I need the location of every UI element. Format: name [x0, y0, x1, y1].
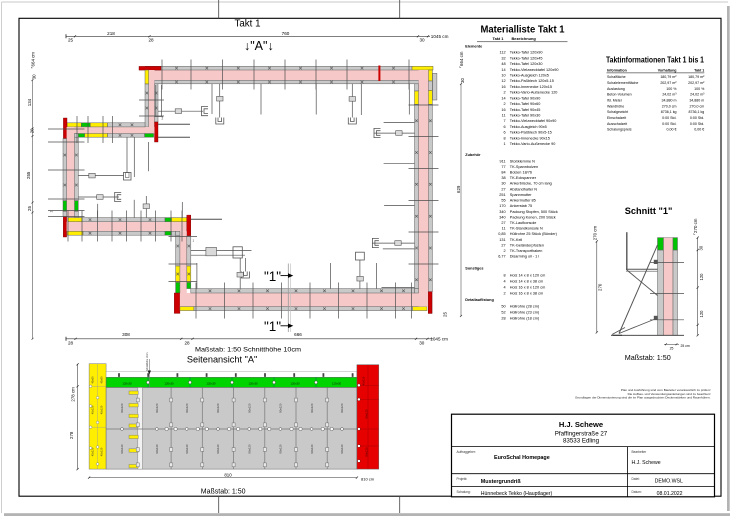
svg-text:"1": "1"	[264, 319, 281, 334]
svg-text:8736,1 kg: 8736,1 kg	[661, 110, 677, 114]
svg-text:0,00 €: 0,00 €	[694, 128, 704, 132]
svg-text:Bearbeiter: Bearbeiter	[632, 450, 648, 454]
svg-text:30: 30	[460, 78, 465, 83]
svg-text:Projekt:: Projekt:	[457, 477, 468, 481]
svg-text:Taktinformationen Takt 1 bis: Taktinformationen Takt 1 bis 1	[606, 55, 704, 65]
svg-text:TK-Standkonsole N: TK-Standkonsole N	[510, 227, 543, 231]
svg-text:Maßstab: 1:50: Maßstab: 1:50	[625, 353, 671, 362]
svg-text:Hüllrohre 25 Stück (Bünder): Hüllrohre 25 Stück (Bünder)	[510, 232, 558, 236]
svg-text:4: 4	[503, 285, 505, 289]
svg-text:Zubehör: Zubehör	[465, 153, 481, 157]
svg-text:34,880 m: 34,880 m	[689, 99, 704, 103]
svg-text:Information: Information	[607, 68, 627, 72]
svg-text:Stoßklemme N: Stoßklemme N	[510, 159, 535, 163]
svg-text:Wandhöhe: Wandhöhe	[607, 104, 624, 108]
svg-text:100 %: 100 %	[666, 87, 677, 91]
svg-text:Tekko-Vario-Außenecke 90: Tekko-Vario-Außenecke 90	[510, 142, 556, 146]
svg-text:Hünnebeck Tekko (Hauptlager): Hünnebeck Tekko (Hauptlager)	[481, 491, 553, 497]
svg-text:Holz 14 x 8 x 120 cm: Holz 14 x 8 x 120 cm	[510, 274, 545, 278]
svg-text:Holz 16 x 8 x 120 cm: Holz 16 x 8 x 120 cm	[510, 285, 545, 289]
svg-text:810: 810	[224, 472, 232, 477]
svg-text:Takt 1: Takt 1	[493, 36, 505, 41]
svg-text:270,0 cm: 270,0 cm	[690, 104, 705, 108]
svg-text:Elemente: Elemente	[465, 45, 482, 49]
svg-text:2: 2	[503, 249, 505, 253]
svg-text:Maßstab: 1:50: Maßstab: 1:50	[201, 489, 246, 496]
svg-text:Tekko-Vielzwecktafel 90x90: Tekko-Vielzwecktafel 90x90	[510, 119, 557, 123]
svg-text:45x60: 45x60	[100, 376, 104, 384]
svg-text:25 cm: 25 cm	[681, 344, 690, 348]
svg-text:30: 30	[698, 245, 703, 250]
svg-text:1045 cm: 1045 cm	[431, 34, 449, 39]
svg-text:25: 25	[27, 206, 32, 211]
svg-text:6: 6	[503, 125, 505, 129]
svg-text:90x120: 90x120	[279, 444, 283, 454]
svg-text:278: 278	[69, 431, 74, 439]
svg-text:24,02 m³: 24,02 m³	[662, 93, 677, 97]
svg-text:32: 32	[501, 56, 505, 60]
svg-text:1045 cm: 1045 cm	[430, 337, 448, 342]
svg-text:14: 14	[501, 68, 505, 72]
svg-text:Hüllrohre (28 cm): Hüllrohre (28 cm)	[510, 305, 540, 309]
svg-text:Takt 1: Takt 1	[694, 68, 704, 72]
svg-text:30: 30	[419, 37, 425, 42]
svg-text:120x30: 120x30	[206, 382, 216, 386]
svg-text:Pfaffingerstraße 27: Pfaffingerstraße 27	[555, 430, 608, 437]
svg-text:DEMO.WSL: DEMO.WSL	[655, 479, 683, 485]
svg-text:83533 Edling: 83533 Edling	[563, 437, 600, 444]
svg-text:810 cm: 810 cm	[361, 476, 375, 481]
svg-text:270 cm: 270 cm	[592, 226, 597, 241]
svg-text:Tekko-Tafel 120x45: Tekko-Tafel 120x45	[510, 56, 543, 60]
svg-text:Mustergrundriß: Mustergrundriß	[481, 479, 522, 485]
svg-text:911: 911	[500, 159, 506, 163]
svg-text:278 cm: 278 cm	[71, 387, 76, 402]
svg-text:Ankerstab 75: Ankerstab 75	[510, 204, 532, 208]
svg-text:55: 55	[501, 199, 505, 203]
svg-text:120x30: 120x30	[290, 382, 300, 386]
svg-text:Datum:: Datum:	[632, 490, 642, 494]
svg-text:180,79 m²: 180,79 m²	[688, 75, 705, 79]
svg-text:90x120: 90x120	[185, 403, 189, 413]
svg-text:Disarming oil - 1 l: Disarming oil - 1 l	[510, 255, 539, 259]
svg-text:90x120: 90x120	[340, 444, 344, 454]
svg-text:45x120: 45x120	[100, 405, 104, 414]
svg-text:16: 16	[501, 108, 505, 112]
svg-text:90x120: 90x120	[120, 444, 124, 454]
svg-text:28: 28	[68, 341, 74, 346]
svg-text:218: 218	[107, 31, 115, 36]
svg-text:120x30: 120x30	[122, 382, 132, 386]
svg-text:Holz 16 x 8 x 38 cm: Holz 16 x 8 x 38 cm	[510, 291, 543, 295]
svg-text:50: 50	[501, 305, 505, 309]
svg-text:12: 12	[501, 79, 505, 83]
svg-text:TK-Eckspanner: TK-Eckspanner	[510, 176, 537, 180]
svg-text:25: 25	[443, 312, 448, 317]
svg-text:Ausschalzeit: Ausschalzeit	[607, 122, 627, 126]
svg-text:30: 30	[419, 341, 425, 346]
svg-text:14: 14	[501, 96, 505, 100]
svg-text:8: 8	[503, 136, 505, 140]
svg-text:120x30: 120x30	[332, 382, 342, 386]
svg-text:6,77: 6,77	[498, 255, 505, 259]
svg-text:131: 131	[499, 238, 505, 242]
svg-text:90x120: 90x120	[340, 403, 344, 413]
svg-text:7: 7	[503, 119, 505, 123]
svg-text:45x60: 45x60	[91, 376, 95, 384]
svg-text:27: 27	[501, 244, 505, 248]
svg-text:255: 255	[26, 171, 31, 179]
svg-text:Einschalzeit: Einschalzeit	[607, 116, 626, 120]
svg-text:Tekko-Tafel 90x90: Tekko-Tafel 90x90	[510, 96, 541, 100]
svg-text:25: 25	[68, 37, 74, 42]
svg-text:90x120: 90x120	[185, 444, 189, 454]
svg-text:90x120: 90x120	[279, 403, 283, 413]
svg-text:TK-Laufkonsole: TK-Laufkonsole	[510, 221, 537, 225]
svg-text:Schalgewicht: Schalgewicht	[607, 110, 628, 114]
svg-text:Tekko-Vielzwecktafel 120x90: Tekko-Vielzwecktafel 120x90	[510, 68, 559, 72]
svg-text:0:00 Std.: 0:00 Std.	[690, 116, 704, 120]
svg-text:4: 4	[503, 280, 505, 284]
svg-text:⌜270 cm: ⌜270 cm	[693, 218, 698, 235]
svg-text:Schnitt "1": Schnitt "1"	[625, 206, 673, 216]
svg-text:Tekko-Tafel 120x30: Tekko-Tafel 120x30	[510, 62, 543, 66]
svg-text:Tekko-Tafel 90x45: Tekko-Tafel 90x45	[510, 108, 541, 112]
svg-text:Hüllrohre (18 cm): Hüllrohre (18 cm)	[510, 317, 540, 321]
svg-text:30: 30	[31, 74, 36, 79]
svg-text:90x120: 90x120	[216, 444, 220, 454]
svg-text:28: 28	[148, 37, 154, 42]
svg-text:90x120: 90x120	[155, 403, 159, 413]
svg-text:24,02 m³: 24,02 m³	[690, 93, 705, 97]
svg-text:Vorhaltung: Vorhaltung	[658, 68, 677, 72]
svg-text:20: 20	[29, 128, 34, 133]
svg-text:Datei:: Datei:	[632, 477, 640, 481]
svg-text:28: 28	[501, 317, 505, 321]
svg-text:Tekko-Tafel 90x60: Tekko-Tafel 90x60	[510, 102, 541, 106]
svg-text:2: 2	[503, 91, 505, 95]
svg-text:0,85: 0,85	[498, 232, 505, 236]
svg-text:↓"A"↓: ↓"A"↓	[244, 39, 274, 53]
svg-text:Schalfläche: Schalfläche	[607, 75, 626, 79]
svg-text:Bolzen 18/76: Bolzen 18/76	[510, 171, 532, 175]
svg-text:11: 11	[502, 227, 506, 231]
svg-text:202,97 m²: 202,97 m²	[660, 81, 677, 85]
svg-text:"1": "1"	[264, 269, 281, 284]
svg-text:Tekko-Innenecke 120x15: Tekko-Innenecke 120x15	[510, 85, 552, 89]
svg-text:27: 27	[501, 221, 505, 225]
svg-text:2: 2	[162, 117, 164, 121]
svg-text:90x120: 90x120	[120, 403, 124, 413]
svg-text:Packung Stopfen, 500 Stück: Packung Stopfen, 500 Stück	[510, 210, 558, 214]
svg-text:H.J. Schewe: H.J. Schewe	[559, 420, 603, 429]
svg-text:90x120: 90x120	[247, 444, 251, 454]
svg-text:77: 77	[501, 165, 505, 169]
svg-text:90x120: 90x120	[310, 403, 314, 413]
svg-text:120: 120	[699, 273, 704, 281]
svg-text:11: 11	[502, 114, 506, 118]
svg-text:Spannmutter: Spannmutter	[510, 193, 532, 197]
svg-text:308: 308	[122, 332, 130, 337]
svg-text:45x120: 45x120	[362, 376, 366, 385]
svg-text:H.J. Schewe: H.J. Schewe	[632, 460, 661, 466]
svg-text:Sonstiges: Sonstiges	[465, 267, 483, 271]
svg-text:0,00 €: 0,00 €	[667, 128, 677, 132]
svg-text:Seitenansicht "A": Seitenansicht "A"	[187, 355, 257, 365]
svg-text:120x30: 120x30	[248, 382, 258, 386]
svg-text:6: 6	[503, 131, 505, 135]
svg-text:Tekko-Paßblech 120x5-15: Tekko-Paßblech 120x5-15	[510, 79, 554, 83]
svg-text:Schnitthöhe 10cm: Schnitthöhe 10cm	[146, 353, 149, 371]
svg-text:340: 340	[499, 210, 505, 214]
svg-text:1: 1	[503, 142, 505, 146]
svg-text:Hüllrohre (23 cm): Hüllrohre (23 cm)	[510, 311, 540, 315]
svg-text:Auftraggeber:: Auftraggeber:	[457, 450, 476, 454]
svg-text:25: 25	[670, 346, 674, 350]
svg-text:Tekko-Ausgleich 90x5: Tekko-Ausgleich 90x5	[510, 125, 547, 129]
svg-text:8: 8	[503, 274, 505, 278]
svg-text:45x120: 45x120	[100, 447, 104, 456]
svg-text:⌜664 cm: ⌜664 cm	[459, 51, 464, 68]
svg-text:Packung Konen, 200 Stück: Packung Konen, 200 Stück	[510, 215, 556, 219]
svg-text:120x30: 120x30	[164, 382, 174, 386]
svg-text:Schalung:: Schalung:	[457, 490, 471, 494]
svg-text:Ankerbrücke, 70 cm lang: Ankerbrücke, 70 cm lang	[510, 182, 552, 186]
svg-text:Tekko-Ausgleich 120x5: Tekko-Ausgleich 120x5	[510, 74, 549, 78]
svg-text:2: 2	[50, 210, 54, 212]
svg-text:100 %: 100 %	[694, 87, 705, 91]
svg-text:0:00 Std.: 0:00 Std.	[690, 122, 704, 126]
svg-text:202,97 m²: 202,97 m²	[688, 81, 705, 85]
svg-text:Auslastung: Auslastung	[607, 87, 625, 91]
svg-text:TK-Transporthaken: TK-Transporthaken	[510, 249, 543, 253]
svg-text:⌜664 cm: ⌜664 cm	[30, 52, 35, 69]
svg-text:90x120: 90x120	[247, 403, 251, 413]
svg-text:38: 38	[501, 176, 505, 180]
svg-text:EuroSchal Homepage: EuroSchal Homepage	[494, 455, 550, 461]
svg-text:666: 666	[294, 332, 302, 337]
svg-text:Detailauflistung: Detailauflistung	[465, 298, 494, 302]
svg-text:48: 48	[501, 62, 505, 66]
svg-text:760: 760	[282, 31, 290, 36]
svg-text:08.01.2022: 08.01.2022	[657, 491, 683, 497]
svg-text:30: 30	[501, 182, 505, 186]
svg-text:Grundlagen der Dimensionierung: Grundlagen der Dimensionierung sind die …	[575, 396, 711, 400]
svg-text:Ankermutter 85: Ankermutter 85	[510, 199, 536, 203]
svg-text:84: 84	[501, 171, 505, 175]
svg-text:90x120: 90x120	[365, 409, 369, 419]
svg-text:Takt 1: Takt 1	[235, 19, 261, 30]
svg-text:90x120: 90x120	[155, 444, 159, 454]
svg-text:134: 134	[27, 98, 32, 106]
svg-text:120: 120	[699, 310, 704, 318]
svg-text:2: 2	[503, 291, 505, 295]
svg-text:16: 16	[501, 85, 505, 89]
svg-text:Holz 14 x 8 x 38 cm: Holz 14 x 8 x 38 cm	[510, 280, 543, 284]
svg-text:28: 28	[184, 341, 190, 346]
svg-text:Schalelementfläche: Schalelementfläche	[607, 81, 638, 85]
svg-text:2: 2	[503, 102, 505, 106]
svg-text:Bezeichnung: Bezeichnung	[512, 36, 537, 41]
svg-text:lfd. Meter: lfd. Meter	[607, 99, 623, 103]
svg-text:112: 112	[500, 51, 506, 55]
svg-text:34,880 m: 34,880 m	[662, 99, 677, 103]
svg-text:TK-Geländerpfosten: TK-Geländerpfosten	[510, 244, 544, 248]
svg-text:52: 52	[501, 311, 505, 315]
svg-text:629: 629	[456, 185, 461, 193]
svg-text:90x120: 90x120	[216, 403, 220, 413]
svg-text:170: 170	[499, 204, 505, 208]
svg-text:Tekko-Tafel 90x30: Tekko-Tafel 90x30	[510, 114, 541, 118]
svg-text:Tekko-Vario-Außenecke 120: Tekko-Vario-Außenecke 120	[510, 91, 558, 95]
svg-text:Beton-Volumen: Beton-Volumen	[607, 93, 632, 97]
svg-text:90x120: 90x120	[365, 447, 369, 457]
svg-text:270: 270	[598, 283, 603, 291]
svg-text:251: 251	[499, 193, 505, 197]
svg-text:Maßstab: 1:50 Schnitthöhe: Maßstab: 1:50 Schnitthöhe 10cm	[195, 347, 301, 354]
svg-text:TK-Keil: TK-Keil	[510, 238, 523, 242]
svg-text:8736,1 kg: 8736,1 kg	[689, 110, 705, 114]
svg-text:27: 27	[501, 187, 505, 191]
svg-text:340: 340	[499, 215, 505, 219]
svg-text:0:00 Std.: 0:00 Std.	[662, 122, 676, 126]
svg-text:0:00 Std.: 0:00 Std.	[662, 116, 676, 120]
svg-text:90x120: 90x120	[310, 444, 314, 454]
svg-text:180,79 m²: 180,79 m²	[660, 75, 677, 79]
svg-text:10: 10	[501, 74, 505, 78]
svg-text:Tekko-Paßblech 90x5-15: Tekko-Paßblech 90x5-15	[510, 131, 552, 135]
svg-text:TK-Spannbolzen: TK-Spannbolzen	[510, 165, 538, 169]
svg-text:Abstandhalter N: Abstandhalter N	[510, 187, 537, 191]
svg-text:Materialliste Takt 1: Materialliste Takt 1	[481, 25, 566, 36]
svg-text:Tekko-Tafel 120x90: Tekko-Tafel 120x90	[510, 51, 543, 55]
svg-text:Tekko-Innenecke 90x15: Tekko-Innenecke 90x15	[510, 136, 550, 140]
svg-text:Schalungspreis: Schalungspreis	[607, 128, 632, 132]
svg-text:270,0 cm: 270,0 cm	[662, 104, 677, 108]
